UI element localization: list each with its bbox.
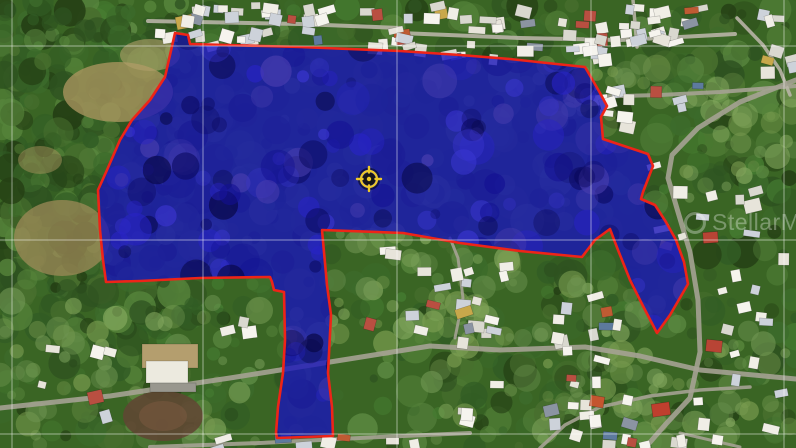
listing-map-screenshot: StellarMLS: [0, 0, 796, 448]
satellite-map-image[interactable]: [0, 0, 796, 448]
